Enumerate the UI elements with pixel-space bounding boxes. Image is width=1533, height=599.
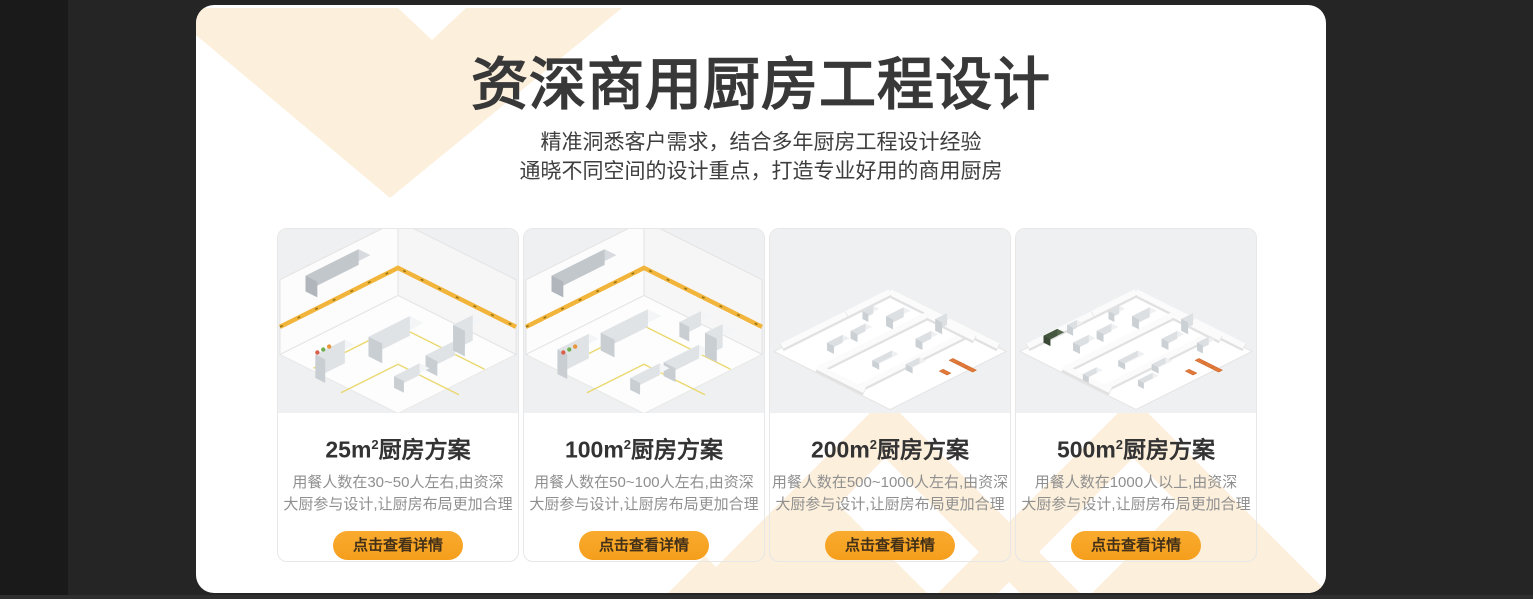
page-subtitle: 精准洞悉客户需求，结合多年厨房工程设计经验通晓不同空间的设计重点，打造专业好用的… [196,128,1326,186]
content-panel: 资深商用厨房工程设计 精准洞悉客户需求，结合多年厨房工程设计经验通晓不同空间的设… [196,5,1326,593]
plan-description: 用餐人数在500~1000人左右,由资深大厨参与设计,让厨房布局更加合理 [770,472,1010,516]
view-details-button[interactable]: 点击查看详情 [825,531,955,560]
subtitle-line-2: 通晓不同空间的设计重点，打造专业好用的商用厨房 [520,160,1003,183]
plan-card: 100m2厨房方案 用餐人数在50~100人左右,由资深大厨参与设计,让厨房布局… [523,228,765,562]
kitchen-render-200sqm [770,229,1010,413]
plan-card: 25m2厨房方案 用餐人数在30~50人左右,由资深大厨参与设计,让厨房布局更加… [277,228,519,562]
kitchen-render-25sqm [278,229,518,413]
plan-title: 200m2厨房方案 [770,430,1010,465]
kitchen-render-500sqm [1016,229,1256,413]
subtitle-line-1: 精准洞悉客户需求，结合多年厨房工程设计经验 [541,131,982,154]
plan-description: 用餐人数在50~100人左右,由资深大厨参与设计,让厨房布局更加合理 [524,472,764,516]
plan-title: 25m2厨房方案 [278,430,518,465]
plan-title: 100m2厨房方案 [524,430,764,465]
plan-description: 用餐人数在30~50人左右,由资深大厨参与设计,让厨房布局更加合理 [278,472,518,516]
plan-cards-row: 25m2厨房方案 用餐人数在30~50人左右,由资深大厨参与设计,让厨房布局更加… [277,228,1257,562]
page-bottom-strip [0,595,1533,599]
view-details-button[interactable]: 点击查看详情 [1071,531,1201,560]
page-left-dark-strip [0,0,68,599]
plan-description: 用餐人数在1000人以上,由资深大厨参与设计,让厨房布局更加合理 [1016,472,1256,516]
page-title: 资深商用厨房工程设计 [196,5,1326,118]
plan-title: 500m2厨房方案 [1016,430,1256,465]
page-background: 资深商用厨房工程设计 精准洞悉客户需求，结合多年厨房工程设计经验通晓不同空间的设… [0,0,1533,599]
kitchen-render-100sqm [524,229,764,413]
view-details-button[interactable]: 点击查看详情 [579,531,709,560]
plan-card: 500m2厨房方案 用餐人数在1000人以上,由资深大厨参与设计,让厨房布局更加… [1015,228,1257,562]
plan-card: 200m2厨房方案 用餐人数在500~1000人左右,由资深大厨参与设计,让厨房… [769,228,1011,562]
view-details-button[interactable]: 点击查看详情 [333,531,463,560]
